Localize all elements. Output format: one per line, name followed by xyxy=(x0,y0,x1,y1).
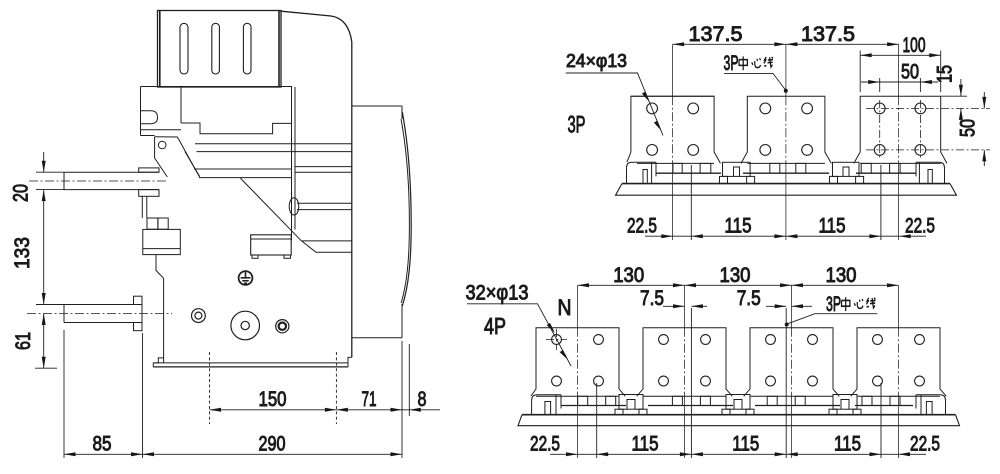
svg-text:3P: 3P xyxy=(826,293,841,316)
svg-text:7.5: 7.5 xyxy=(640,287,664,310)
svg-text:71: 71 xyxy=(362,388,377,411)
svg-text:115: 115 xyxy=(725,215,752,238)
svg-text:8: 8 xyxy=(418,388,427,411)
svg-text:85: 85 xyxy=(93,433,112,456)
svg-text:115: 115 xyxy=(632,433,659,456)
svg-text:133: 133 xyxy=(11,237,34,269)
svg-text:150: 150 xyxy=(259,388,287,411)
svg-text:22.5: 22.5 xyxy=(530,433,560,456)
svg-text:24×φ13: 24×φ13 xyxy=(566,51,627,71)
svg-text:15: 15 xyxy=(934,65,957,83)
svg-text:50: 50 xyxy=(901,61,919,84)
svg-text:290: 290 xyxy=(259,433,286,456)
svg-text:3P: 3P xyxy=(724,52,739,75)
svg-text:130: 130 xyxy=(613,264,644,287)
svg-text:22.5: 22.5 xyxy=(627,215,657,238)
svg-text:50: 50 xyxy=(957,119,980,137)
svg-text:115: 115 xyxy=(834,433,861,456)
svg-text:N: N xyxy=(558,295,572,320)
svg-text:137.5: 137.5 xyxy=(689,23,743,46)
svg-text:115: 115 xyxy=(819,215,846,238)
svg-text:7.5: 7.5 xyxy=(737,287,761,310)
svg-text:130: 130 xyxy=(720,264,751,287)
svg-text:115: 115 xyxy=(732,433,759,456)
svg-text:3P: 3P xyxy=(568,112,586,139)
svg-text:22.5: 22.5 xyxy=(910,433,940,456)
svg-text:61: 61 xyxy=(12,332,35,350)
svg-text:20: 20 xyxy=(10,184,33,202)
svg-text:130: 130 xyxy=(826,264,857,287)
svg-text:4P: 4P xyxy=(484,313,506,339)
svg-text:100: 100 xyxy=(903,34,926,57)
svg-text:137.5: 137.5 xyxy=(801,23,855,46)
svg-text:22.5: 22.5 xyxy=(905,215,935,238)
svg-text:32×φ13: 32×φ13 xyxy=(466,282,529,305)
